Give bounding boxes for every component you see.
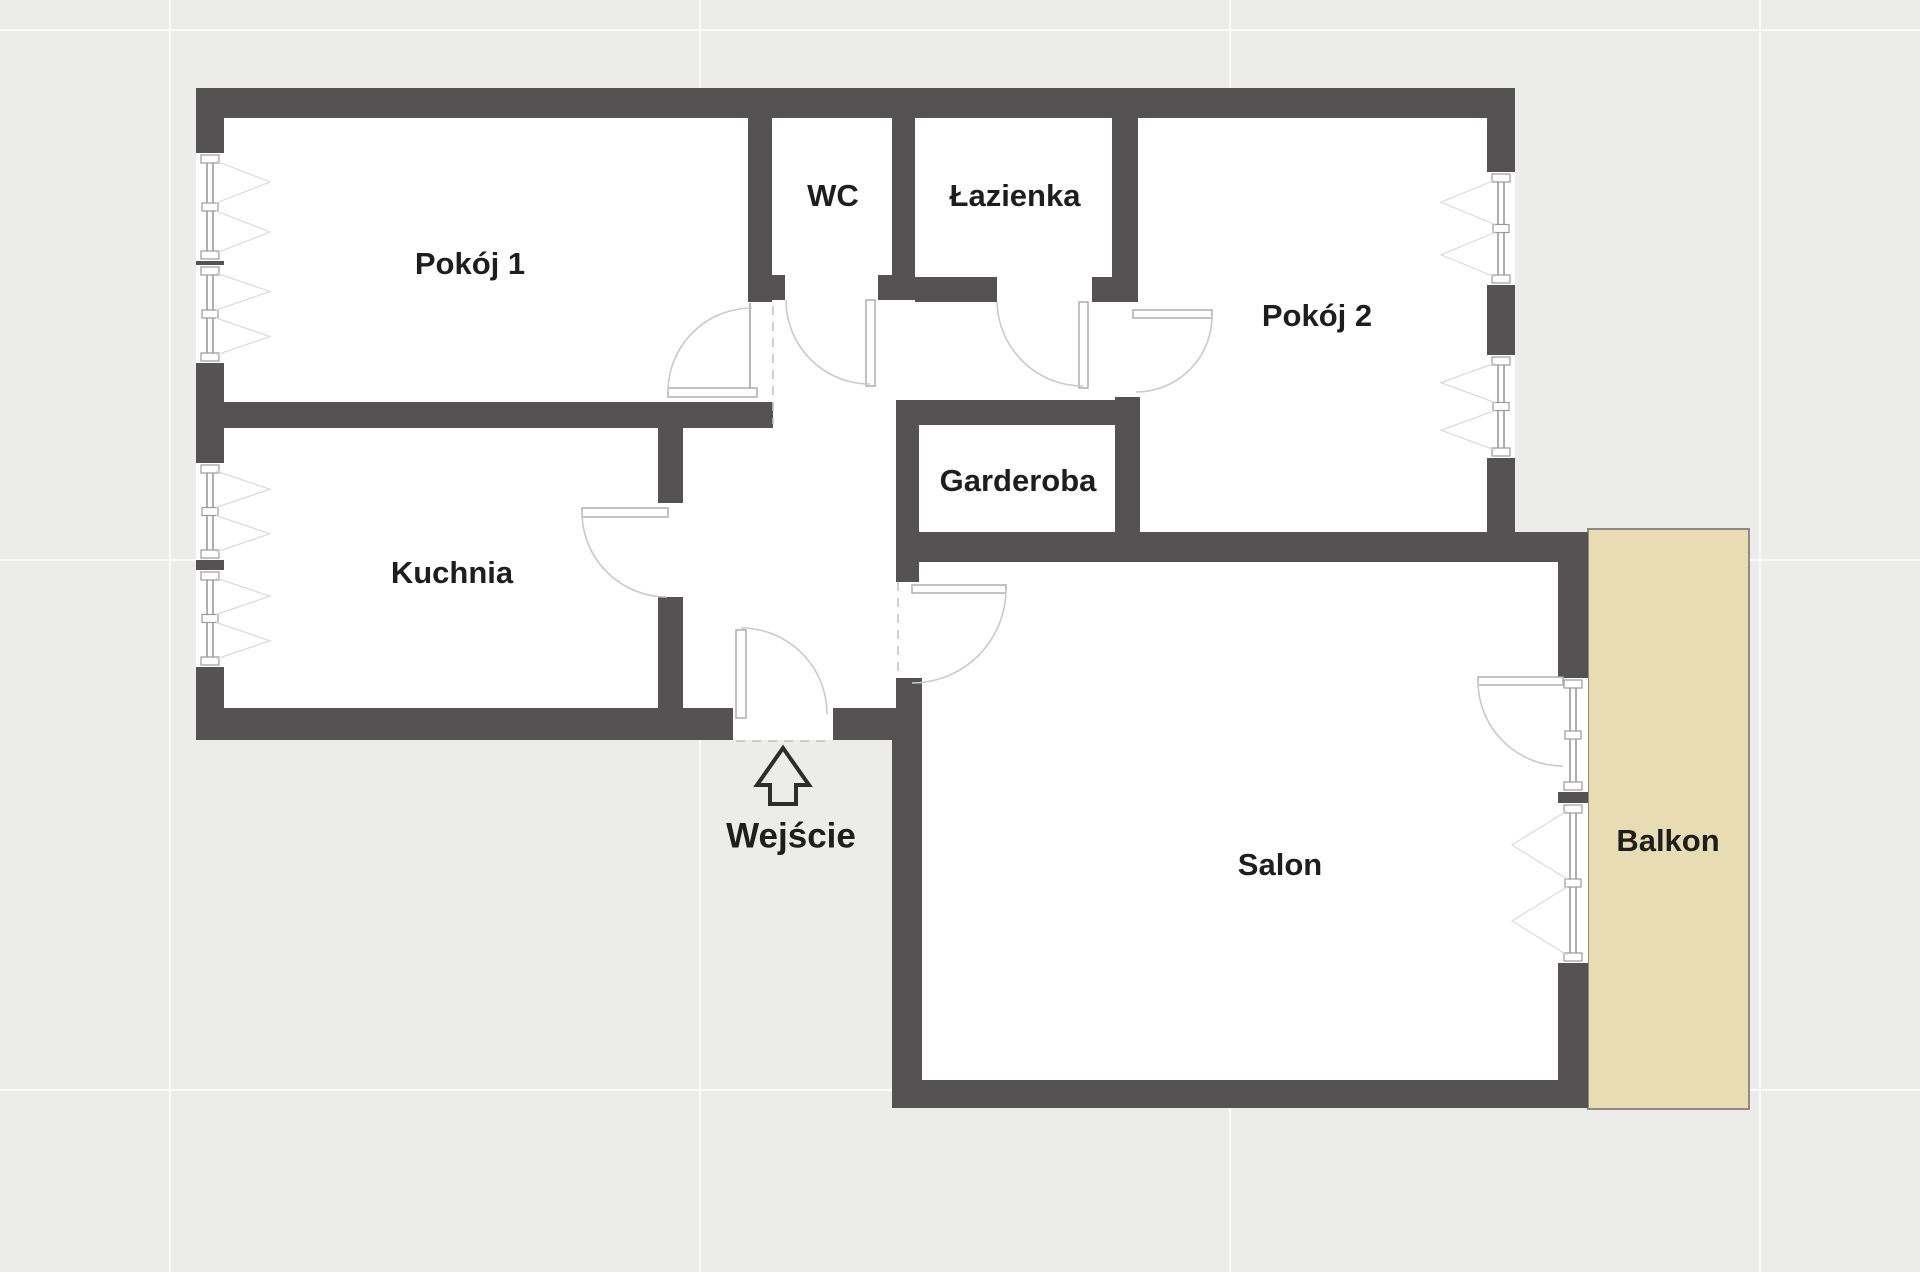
wall-bottom-left-a xyxy=(196,708,733,740)
room-label-salon: Salon xyxy=(1238,847,1322,882)
floor-plan-drawing: Pokój 1 WC Łazienka Pokój 2 Kuchnia Gard… xyxy=(0,0,1920,1272)
wall-salon-top xyxy=(896,532,1588,562)
wall-garderoba-right xyxy=(1117,400,1140,532)
room-label-garderoba: Garderoba xyxy=(940,463,1098,498)
wall-garderoba-top xyxy=(896,400,1140,425)
floor-plan-page: Pokój 1 WC Łazienka Pokój 2 Kuchnia Gard… xyxy=(0,0,1920,1272)
wall-salon-right-a xyxy=(1558,560,1588,678)
wall-pokoj1-kuchnia xyxy=(196,402,773,428)
balcony-floor xyxy=(1588,529,1749,1109)
entrance-label: Wejście xyxy=(726,816,856,855)
room-label-kuchnia: Kuchnia xyxy=(391,555,514,590)
room-label-pokoj-2: Pokój 2 xyxy=(1262,298,1372,333)
room-label-wc: WC xyxy=(807,178,859,213)
wall-lazienka-bottom-a xyxy=(915,277,997,302)
wall-salon-bottom xyxy=(892,1080,1588,1108)
window-mullion-kuchnia xyxy=(196,560,224,570)
balcony-door-opening xyxy=(1558,678,1588,792)
room-label-balkon: Balkon xyxy=(1616,823,1719,858)
wall-salon-left-low xyxy=(892,740,922,1080)
wall-lazienka-right xyxy=(1112,118,1138,302)
room-label-lazienka: Łazienka xyxy=(950,178,1082,213)
balcony-area xyxy=(1588,529,1749,1109)
wall-kuchnia-hall-a xyxy=(658,428,683,503)
floor-salon-block xyxy=(892,532,1588,1108)
wall-top xyxy=(196,88,1515,118)
wall-salon-left-stub xyxy=(896,562,919,582)
wall-salon-left-mid xyxy=(896,678,922,740)
room-label-pokoj-1: Pokój 1 xyxy=(415,246,525,281)
wall-right-outer xyxy=(1487,88,1515,560)
wall-wc-bottom-a xyxy=(748,275,785,300)
wall-garderoba-left xyxy=(896,400,919,532)
wall-wc-bottom-b xyxy=(878,275,915,300)
wall-salon-right-b xyxy=(1558,792,1588,803)
wall-wc-lazienka xyxy=(892,118,915,275)
wall-wc-left xyxy=(748,118,772,302)
wall-kuchnia-hall-b xyxy=(658,597,683,708)
